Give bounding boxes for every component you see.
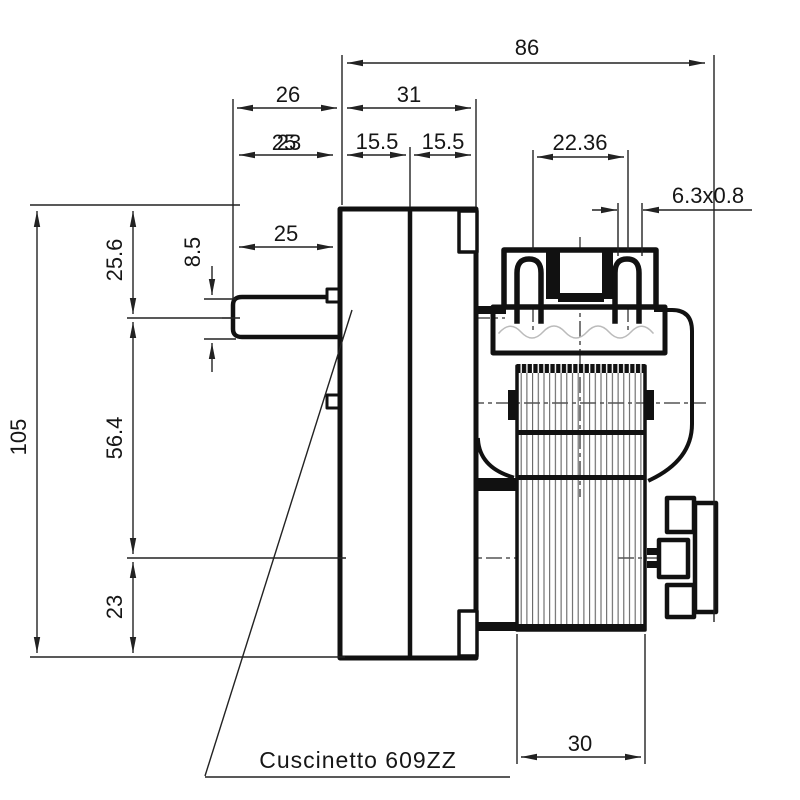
gearbox-tab-top-right: [459, 211, 477, 252]
connect-bar-bottom: [476, 622, 516, 631]
dim-label-56-4: 56.4: [102, 417, 127, 460]
dim-label-31: 31: [397, 82, 421, 107]
dim-label-25-6: 25.6: [102, 239, 127, 282]
motor-stack-lug-left: [508, 390, 517, 420]
dim-label-25: 25: [274, 221, 298, 246]
bearing-leader-line: [205, 310, 352, 776]
bearing-note-label: Cuscinetto 609ZZ: [259, 747, 457, 773]
output-shaft: [233, 297, 339, 337]
capacitor-box-mid: [659, 540, 688, 577]
gearbox-tab-bottom-right: [459, 611, 477, 656]
capacitor-plate: [695, 503, 716, 612]
dim-label-22-36: 22.36: [552, 130, 607, 155]
dim-label-15-5-right: 15.5: [422, 129, 465, 154]
motor-stack-top-band-ticks: [517, 364, 645, 373]
dim-label-23: 23: [102, 595, 127, 619]
connect-bar-mid: [476, 478, 516, 491]
capacitor-tooth-lower: [647, 561, 659, 568]
dim-label-26: 26: [276, 82, 300, 107]
dim-label-30: 30: [568, 731, 592, 756]
part-outlines: [233, 209, 716, 658]
dim-label-15-5-left: 15.5: [356, 129, 399, 154]
terminal-block-center-bottom: [558, 293, 604, 302]
dim-label-8-5: 8.5: [180, 237, 205, 268]
housing-gasket-wave: [499, 326, 653, 338]
dim-label-105: 105: [6, 419, 31, 456]
dim-label-6-3x0-8: 6.3x0.8: [672, 183, 744, 208]
motor-stack-bottom-band: [517, 624, 645, 631]
motor-stack-band-1: [517, 430, 645, 435]
motor-stack-lug-right: [645, 390, 654, 420]
capacitor-tooth-upper: [647, 548, 659, 555]
engineering-drawing-gearmotor: 86 26 31 25 23 15.5 15.5 22.36 6.3x0.8 2…: [0, 0, 800, 800]
motor-stack: [517, 366, 645, 630]
dim-label-23-overlap-b: 23: [277, 130, 301, 155]
bracket-right-profile: [650, 310, 692, 480]
motor-stack-band-2: [517, 475, 645, 480]
terminal-block-center-right: [602, 252, 613, 299]
capacitor-box-bottom: [667, 585, 694, 617]
dim-label-86: 86: [515, 35, 539, 60]
bracket-left-corner: [478, 440, 512, 477]
drawing-canvas: 86 26 31 25 23 15.5 15.5 22.36 6.3x0.8 2…: [0, 0, 800, 800]
terminal-block-center-left: [546, 252, 560, 299]
capacitor-box-top: [667, 498, 694, 532]
